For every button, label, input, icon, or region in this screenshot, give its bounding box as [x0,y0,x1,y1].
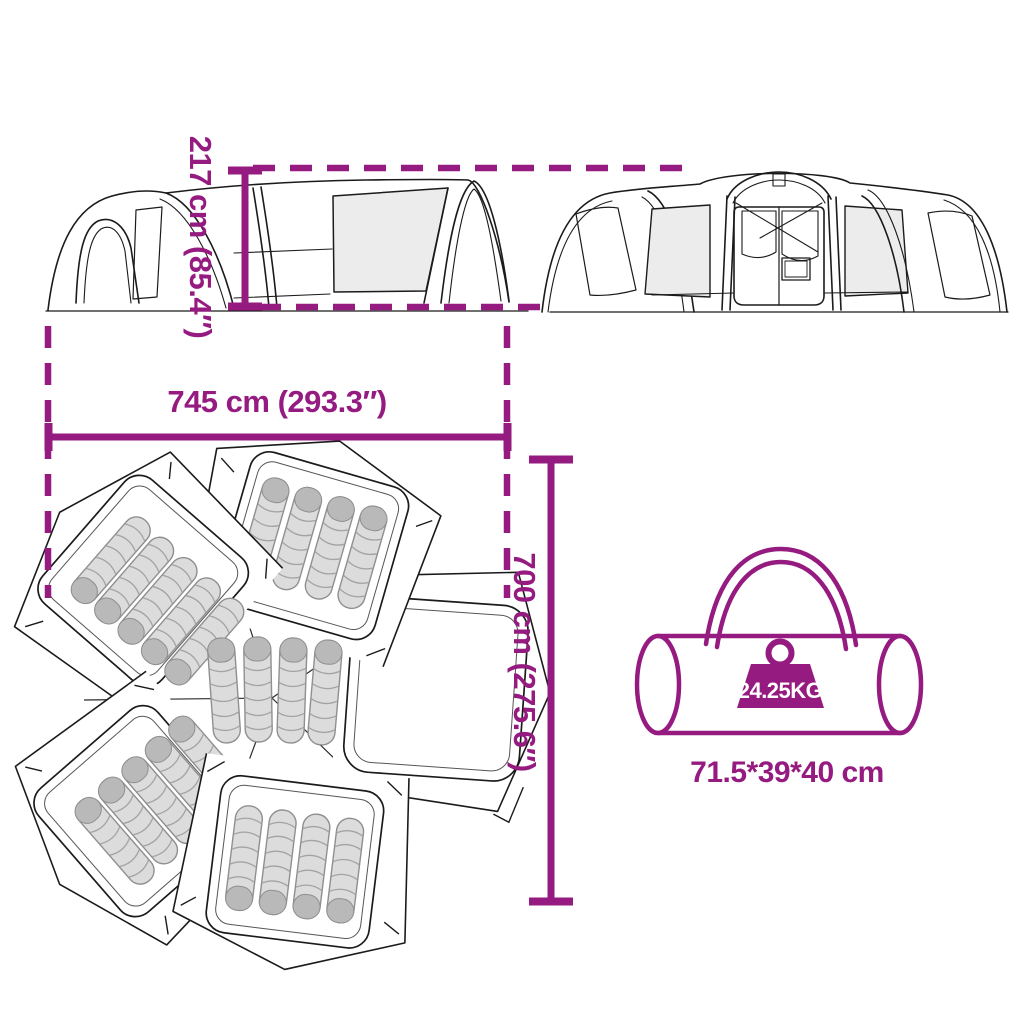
bag-right-end [879,636,921,733]
front-right-window [928,211,990,299]
side-window [133,207,162,299]
tent-floorplan [0,409,558,984]
product-diagram-canvas: 217 cm (85.4″) 745 cm (293.3″) 700 cm (2… [0,0,1024,1024]
side-porch-panel [333,188,448,292]
front-right-panel [845,206,908,296]
front-left-window [576,207,636,295]
tent-front-view [542,172,1008,312]
carry-bag [637,549,921,733]
carry-bag-size-label: 71.5*39*40 cm [690,756,884,789]
height-dimension-line [228,171,262,307]
center-sleeping-bags [207,637,343,746]
width-dimension-label: 745 cm (293.3″) [167,384,386,419]
front-left-panel [645,205,710,297]
tent-side-view [46,179,528,311]
front-silhouette [542,173,1007,312]
bag-left-end [637,636,679,733]
weight-ring [769,642,792,665]
sleeping-pod-bottom [168,752,425,984]
diagram-svg: 217 cm (85.4″) 745 cm (293.3″) 700 cm (2… [0,0,1024,1024]
depth-dimension-label: 700 cm (275.6″) [507,552,542,771]
height-dimension-label: 217 cm (85.4″) [183,136,218,339]
weight-label: 24.25KG [738,678,823,703]
